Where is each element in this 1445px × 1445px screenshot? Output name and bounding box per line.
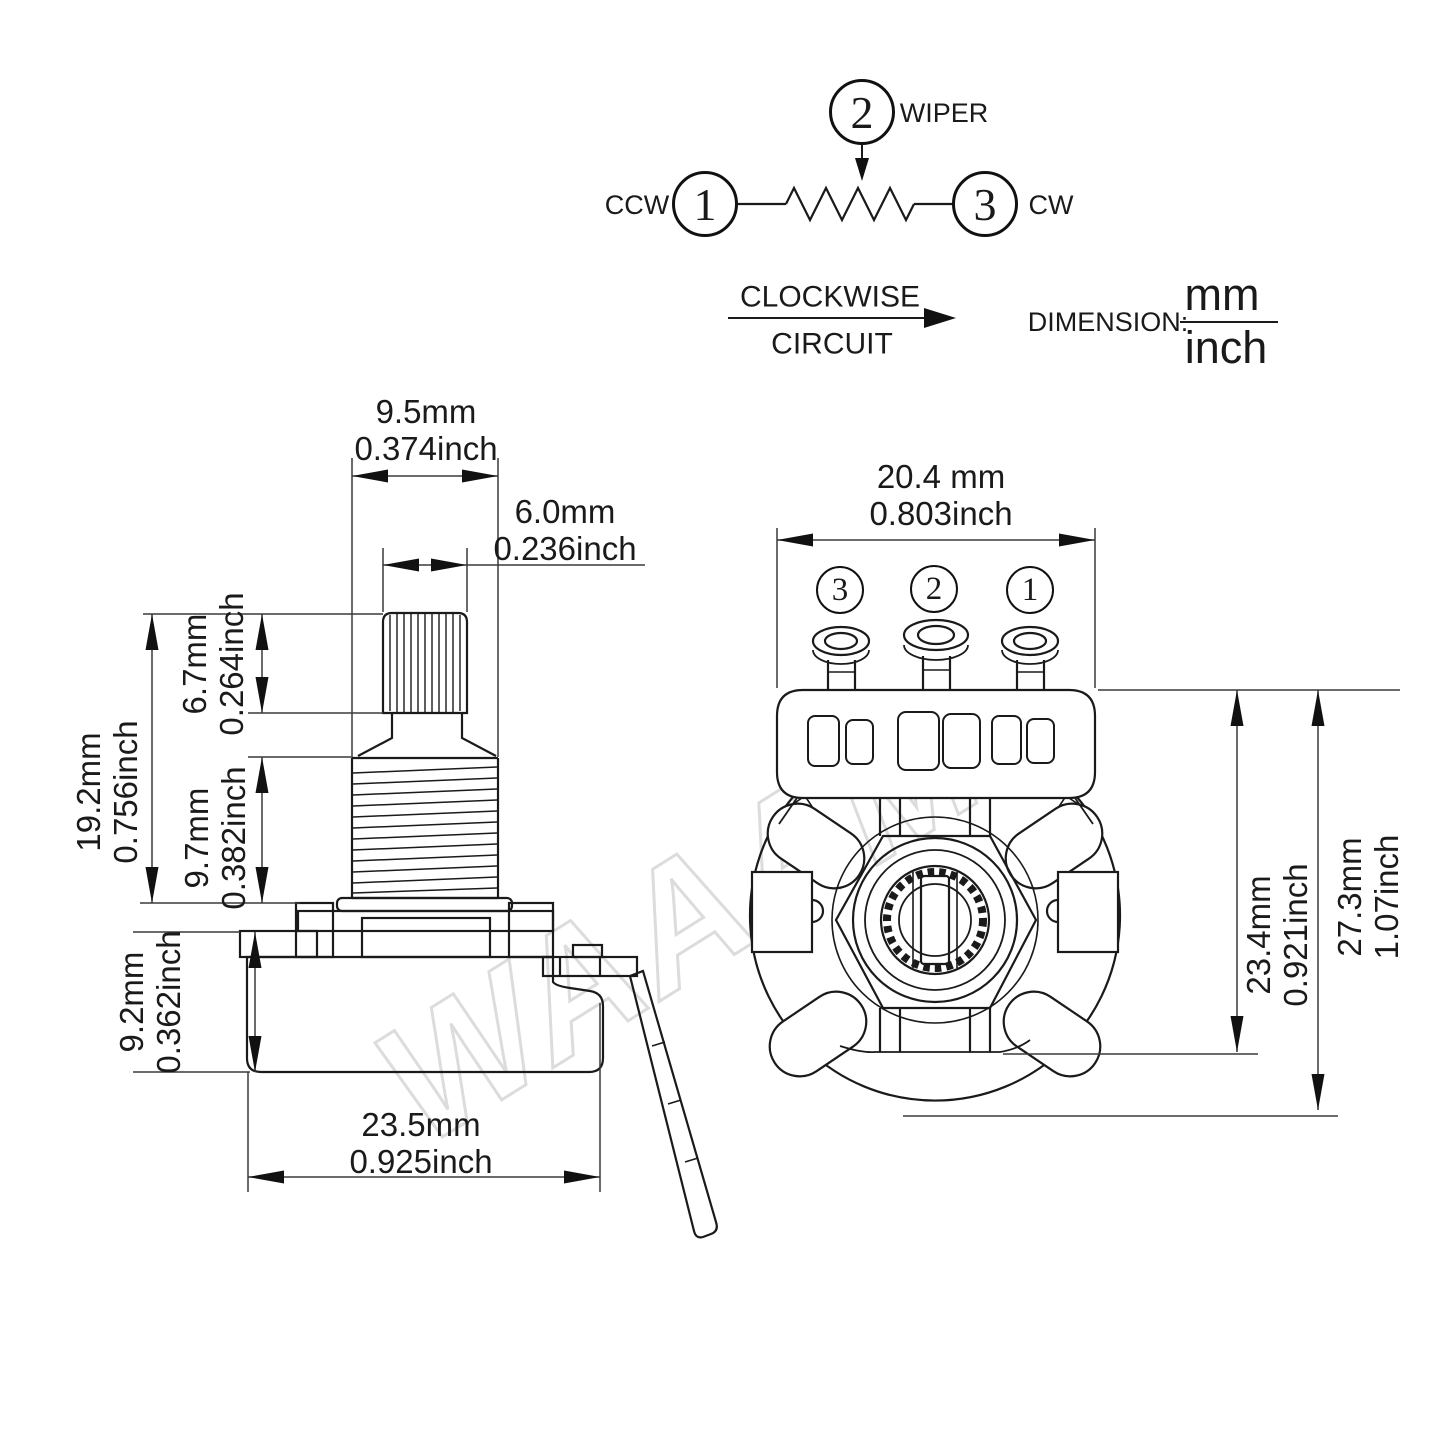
dim-shaft-height: 19.2mm0.756inch <box>70 720 144 863</box>
circuit-label: CIRCUIT <box>771 328 893 361</box>
wiper-label: WIPER <box>900 98 989 128</box>
back-terminal-1: 1 <box>1006 566 1054 614</box>
potentiometer-dimension-diagram: WAAAM <box>0 0 1445 1445</box>
back-terminal-2: 2 <box>910 565 958 613</box>
schematic-terminal-1: 1 <box>672 171 738 237</box>
unit-mm-label: mm <box>1185 271 1260 319</box>
dim-total-height: 27.3mm1.07inch <box>1331 835 1405 960</box>
dim-bushing-diameter: 9.5mm0.374inch <box>354 393 497 467</box>
terminal-lugs <box>813 620 1058 691</box>
dimension-label: DIMENSION: <box>1028 307 1189 337</box>
ccw-label: CCW <box>605 190 669 220</box>
schematic-terminal-3: 3 <box>952 171 1018 237</box>
back-view-drawing <box>750 620 1120 1101</box>
dim-terminal-span: 20.4 mm0.803inch <box>869 458 1012 532</box>
schematic-terminal-2: 2 <box>829 79 895 145</box>
cw-label: CW <box>1029 190 1074 220</box>
dim-bushing-height: 9.7mm0.382inch <box>178 766 252 909</box>
threads <box>353 767 497 893</box>
knurl-splines <box>390 614 460 712</box>
back-terminal-3: 3 <box>816 566 864 614</box>
dim-cover-height: 23.4mm0.921inch <box>1240 863 1314 1006</box>
dim-body-height: 9.2mm0.362inch <box>113 930 187 1073</box>
dimension-arrowheads <box>146 470 1325 1184</box>
dim-body-diameter: 23.5mm0.925inch <box>349 1106 492 1180</box>
dim-shaft-diameter: 6.0mm0.236inch <box>493 493 636 567</box>
clockwise-label: CLOCKWISE <box>740 281 920 314</box>
dim-knurl-height: 6.7mm0.264inch <box>176 592 250 735</box>
unit-inch-label: inch <box>1185 324 1268 372</box>
dimension-lines <box>133 458 1400 1192</box>
